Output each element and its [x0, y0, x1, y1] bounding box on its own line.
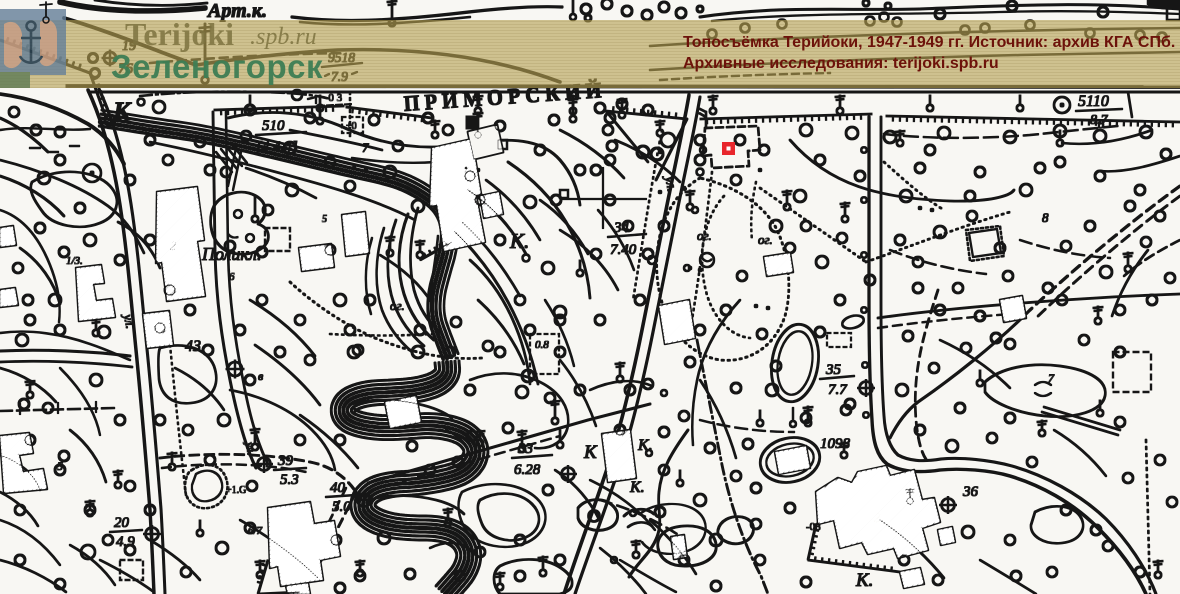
- svg-text:36: 36: [962, 484, 979, 500]
- svg-text:ог.: ог.: [697, 228, 712, 243]
- svg-text:в: в: [258, 369, 263, 383]
- svg-text:-08: -08: [806, 521, 821, 533]
- svg-text:.spb.ru: .spb.ru: [250, 24, 317, 50]
- svg-text:ог.: ог.: [758, 232, 773, 247]
- svg-text:7: 7: [362, 140, 369, 155]
- svg-text:К.: К.: [637, 437, 653, 454]
- svg-text:Terijoki: Terijoki: [125, 16, 234, 52]
- svg-text:20: 20: [114, 515, 130, 531]
- svg-text:7: 7: [1048, 371, 1055, 385]
- svg-text:5110: 5110: [1078, 93, 1109, 110]
- svg-text:5: 5: [322, 214, 327, 225]
- svg-text:Архивные исследования: terijok: Архивные исследования: terijoki.spb.ru: [683, 55, 999, 72]
- svg-text:2: 2: [874, 510, 881, 525]
- svg-text:6.28: 6.28: [514, 462, 541, 478]
- svg-text:5.0: 5.0: [332, 499, 351, 515]
- svg-text:0.8: 0.8: [535, 339, 549, 351]
- svg-text:К: К: [583, 442, 598, 463]
- svg-text:К.: К.: [855, 570, 873, 591]
- svg-text:5.3: 5.3: [280, 472, 299, 488]
- svg-text:8: 8: [1042, 210, 1049, 225]
- svg-text:6: 6: [229, 271, 235, 283]
- svg-text:2: 2: [170, 238, 177, 253]
- svg-text:39: 39: [277, 453, 294, 469]
- svg-text:Зеленогорск: Зеленогорск: [111, 48, 323, 85]
- svg-text:1/3.: 1/3.: [66, 255, 83, 267]
- svg-text:40: 40: [330, 480, 346, 496]
- svg-text:510: 510: [262, 118, 285, 134]
- svg-text:Поликл.: Поликл.: [201, 244, 262, 264]
- svg-text:К.: К.: [629, 479, 645, 496]
- svg-text:+1.G: +1.G: [226, 485, 246, 496]
- svg-text:Топосъёмка Терийоки, 1947-1949: Топосъёмка Терийоки, 1947-1949 гг. Источ…: [683, 34, 1175, 51]
- svg-text:35: 35: [825, 362, 842, 378]
- svg-text:7.7: 7.7: [828, 382, 848, 398]
- svg-text:8: 8: [1098, 116, 1105, 131]
- svg-text:7.40: 7.40: [610, 242, 637, 258]
- svg-text:· 0 3: · 0 3: [322, 92, 343, 104]
